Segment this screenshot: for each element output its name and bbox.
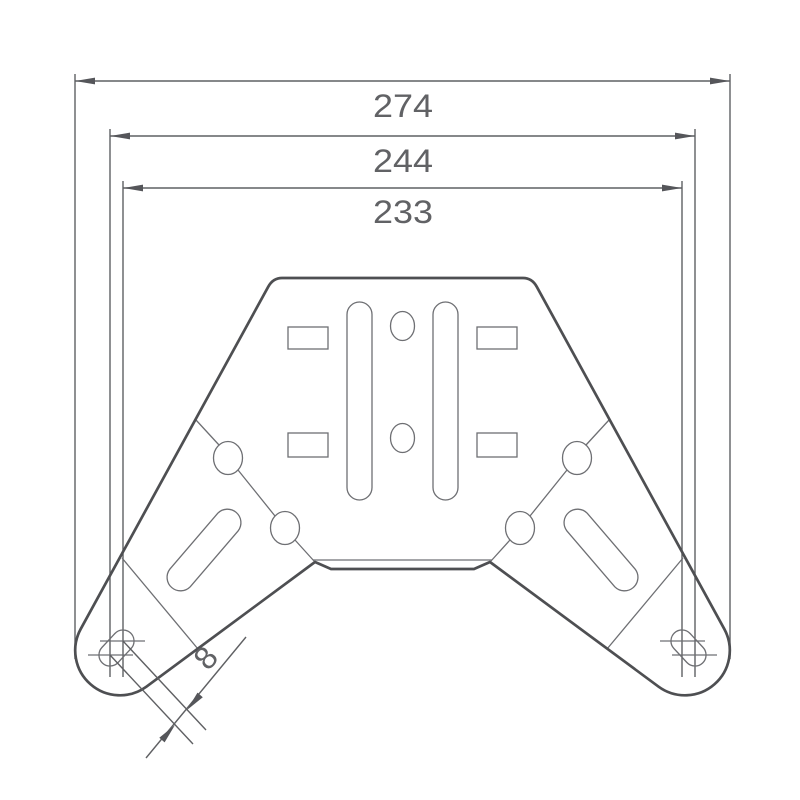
arm-slot-left xyxy=(167,509,241,591)
bend-hole-right-lower xyxy=(506,512,535,545)
arrowhead-8-lower xyxy=(159,725,175,742)
rect-cutout-top-right xyxy=(477,327,517,349)
arrowhead-274-left xyxy=(75,78,95,85)
mount-slot-right xyxy=(671,630,706,666)
top-plate-slot-right xyxy=(433,302,458,500)
arrowhead-244-right xyxy=(675,133,695,140)
extension-line-8-outer xyxy=(110,655,193,744)
center-hole-bottom xyxy=(391,424,415,453)
bend-line-right xyxy=(491,420,609,561)
dimension-label-244: 244 xyxy=(373,143,433,179)
arrowhead-233-right xyxy=(662,185,682,192)
center-marks-right xyxy=(660,641,717,655)
arrowhead-244-left xyxy=(110,133,130,140)
top-plate-slot-left xyxy=(347,302,372,500)
arrowhead-8-upper xyxy=(187,693,203,710)
cross-bend-line-left xyxy=(122,558,198,649)
rect-cutout-bottom-right xyxy=(477,433,517,457)
bend-hole-left-upper xyxy=(214,442,243,475)
bend-hole-left-lower xyxy=(271,512,300,545)
part-features xyxy=(88,302,717,666)
bracket-technical-drawing: 274 244 233 xyxy=(0,0,800,800)
dimension-inner-slot-span: 233 xyxy=(123,185,682,230)
arrowhead-274-right xyxy=(710,78,730,85)
dimension-label-8: 8 xyxy=(186,639,225,676)
center-hole-top xyxy=(391,312,415,341)
dimension-outer-slot-span: 244 xyxy=(110,133,695,179)
arrowhead-233-left xyxy=(123,185,143,192)
center-marks-left xyxy=(88,641,145,655)
bend-hole-right-upper xyxy=(563,442,592,475)
technical-drawing-page: 274 244 233 xyxy=(0,0,800,800)
arm-slot-right xyxy=(564,509,638,591)
dimension-label-233: 233 xyxy=(373,194,433,230)
bend-line-left xyxy=(196,420,314,561)
dimension-overall-width: 274 xyxy=(75,78,730,124)
rect-cutout-bottom-left xyxy=(288,433,328,457)
cross-bend-line-right xyxy=(607,558,683,649)
dimension-label-274: 274 xyxy=(373,88,433,124)
rect-cutout-top-left xyxy=(288,327,328,349)
